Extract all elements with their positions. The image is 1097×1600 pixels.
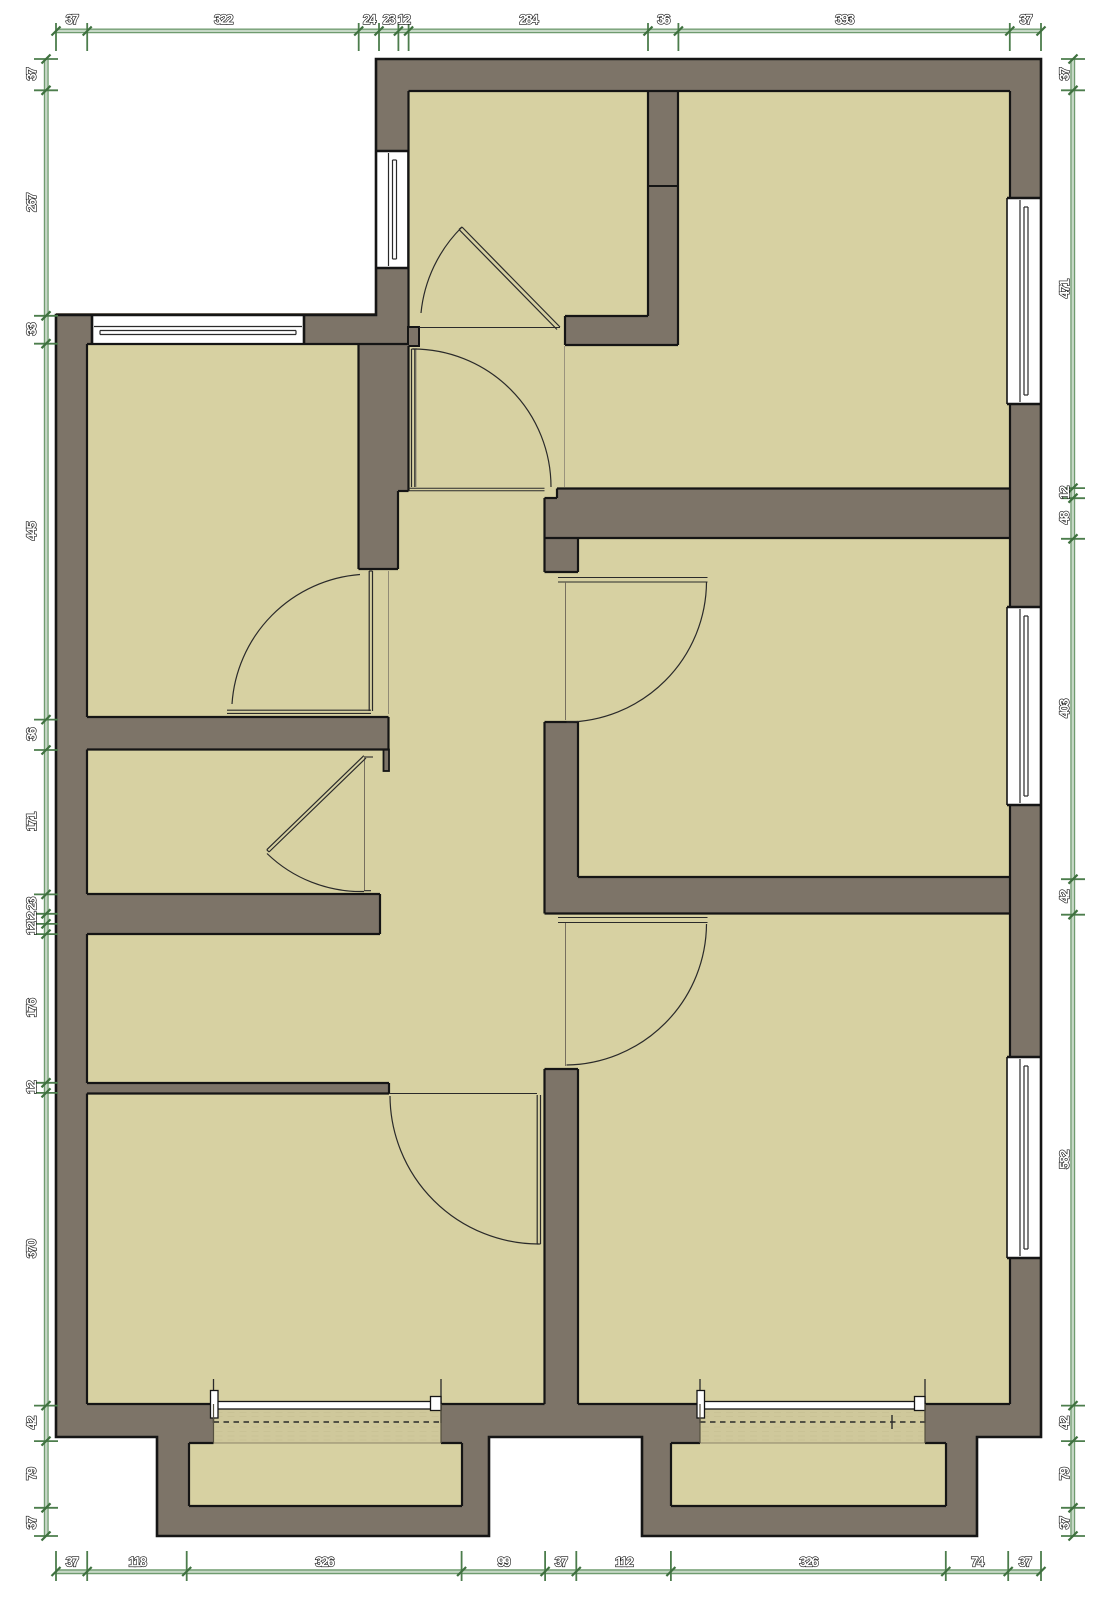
- svg-text:99: 99: [497, 1555, 510, 1570]
- svg-text:393: 393: [835, 12, 855, 27]
- svg-text:37: 37: [1019, 1555, 1032, 1570]
- svg-text:326: 326: [799, 1555, 819, 1570]
- svg-text:24: 24: [363, 12, 377, 27]
- svg-text:322: 322: [214, 12, 233, 27]
- svg-text:12: 12: [397, 12, 410, 27]
- svg-text:48: 48: [1057, 511, 1072, 525]
- svg-text:171: 171: [24, 811, 39, 831]
- svg-text:12: 12: [24, 1081, 39, 1094]
- svg-text:37: 37: [555, 1555, 568, 1570]
- svg-text:12: 12: [1057, 486, 1072, 499]
- svg-text:326: 326: [315, 1555, 335, 1570]
- svg-text:36: 36: [657, 12, 671, 27]
- svg-text:37: 37: [1057, 1516, 1072, 1529]
- svg-text:284: 284: [519, 12, 539, 27]
- svg-text:37: 37: [24, 68, 39, 81]
- svg-text:37: 37: [66, 12, 79, 27]
- svg-text:37: 37: [1019, 12, 1032, 27]
- svg-text:79: 79: [24, 1467, 39, 1480]
- svg-text:23: 23: [24, 896, 39, 910]
- svg-text:267: 267: [24, 193, 39, 212]
- svg-text:23: 23: [383, 12, 397, 27]
- svg-text:112: 112: [615, 1555, 633, 1570]
- svg-text:370: 370: [24, 1239, 39, 1258]
- svg-text:33: 33: [24, 322, 39, 336]
- svg-text:79: 79: [1057, 1467, 1072, 1480]
- svg-text:471: 471: [1057, 278, 1072, 298]
- svg-text:12: 12: [24, 912, 39, 925]
- svg-text:403: 403: [1057, 698, 1072, 718]
- svg-text:176: 176: [24, 997, 39, 1017]
- svg-text:445: 445: [24, 521, 39, 541]
- svg-text:42: 42: [1057, 1416, 1072, 1429]
- svg-text:42: 42: [24, 1416, 39, 1429]
- svg-text:582: 582: [1057, 1150, 1072, 1169]
- svg-text:36: 36: [24, 727, 39, 741]
- svg-text:37: 37: [66, 1555, 79, 1570]
- svg-text:74: 74: [971, 1555, 985, 1570]
- svg-text:42: 42: [1057, 890, 1072, 903]
- svg-text:12: 12: [24, 922, 39, 935]
- svg-text:118: 118: [128, 1555, 147, 1570]
- svg-text:37: 37: [1057, 68, 1072, 81]
- svg-text:37: 37: [24, 1516, 39, 1529]
